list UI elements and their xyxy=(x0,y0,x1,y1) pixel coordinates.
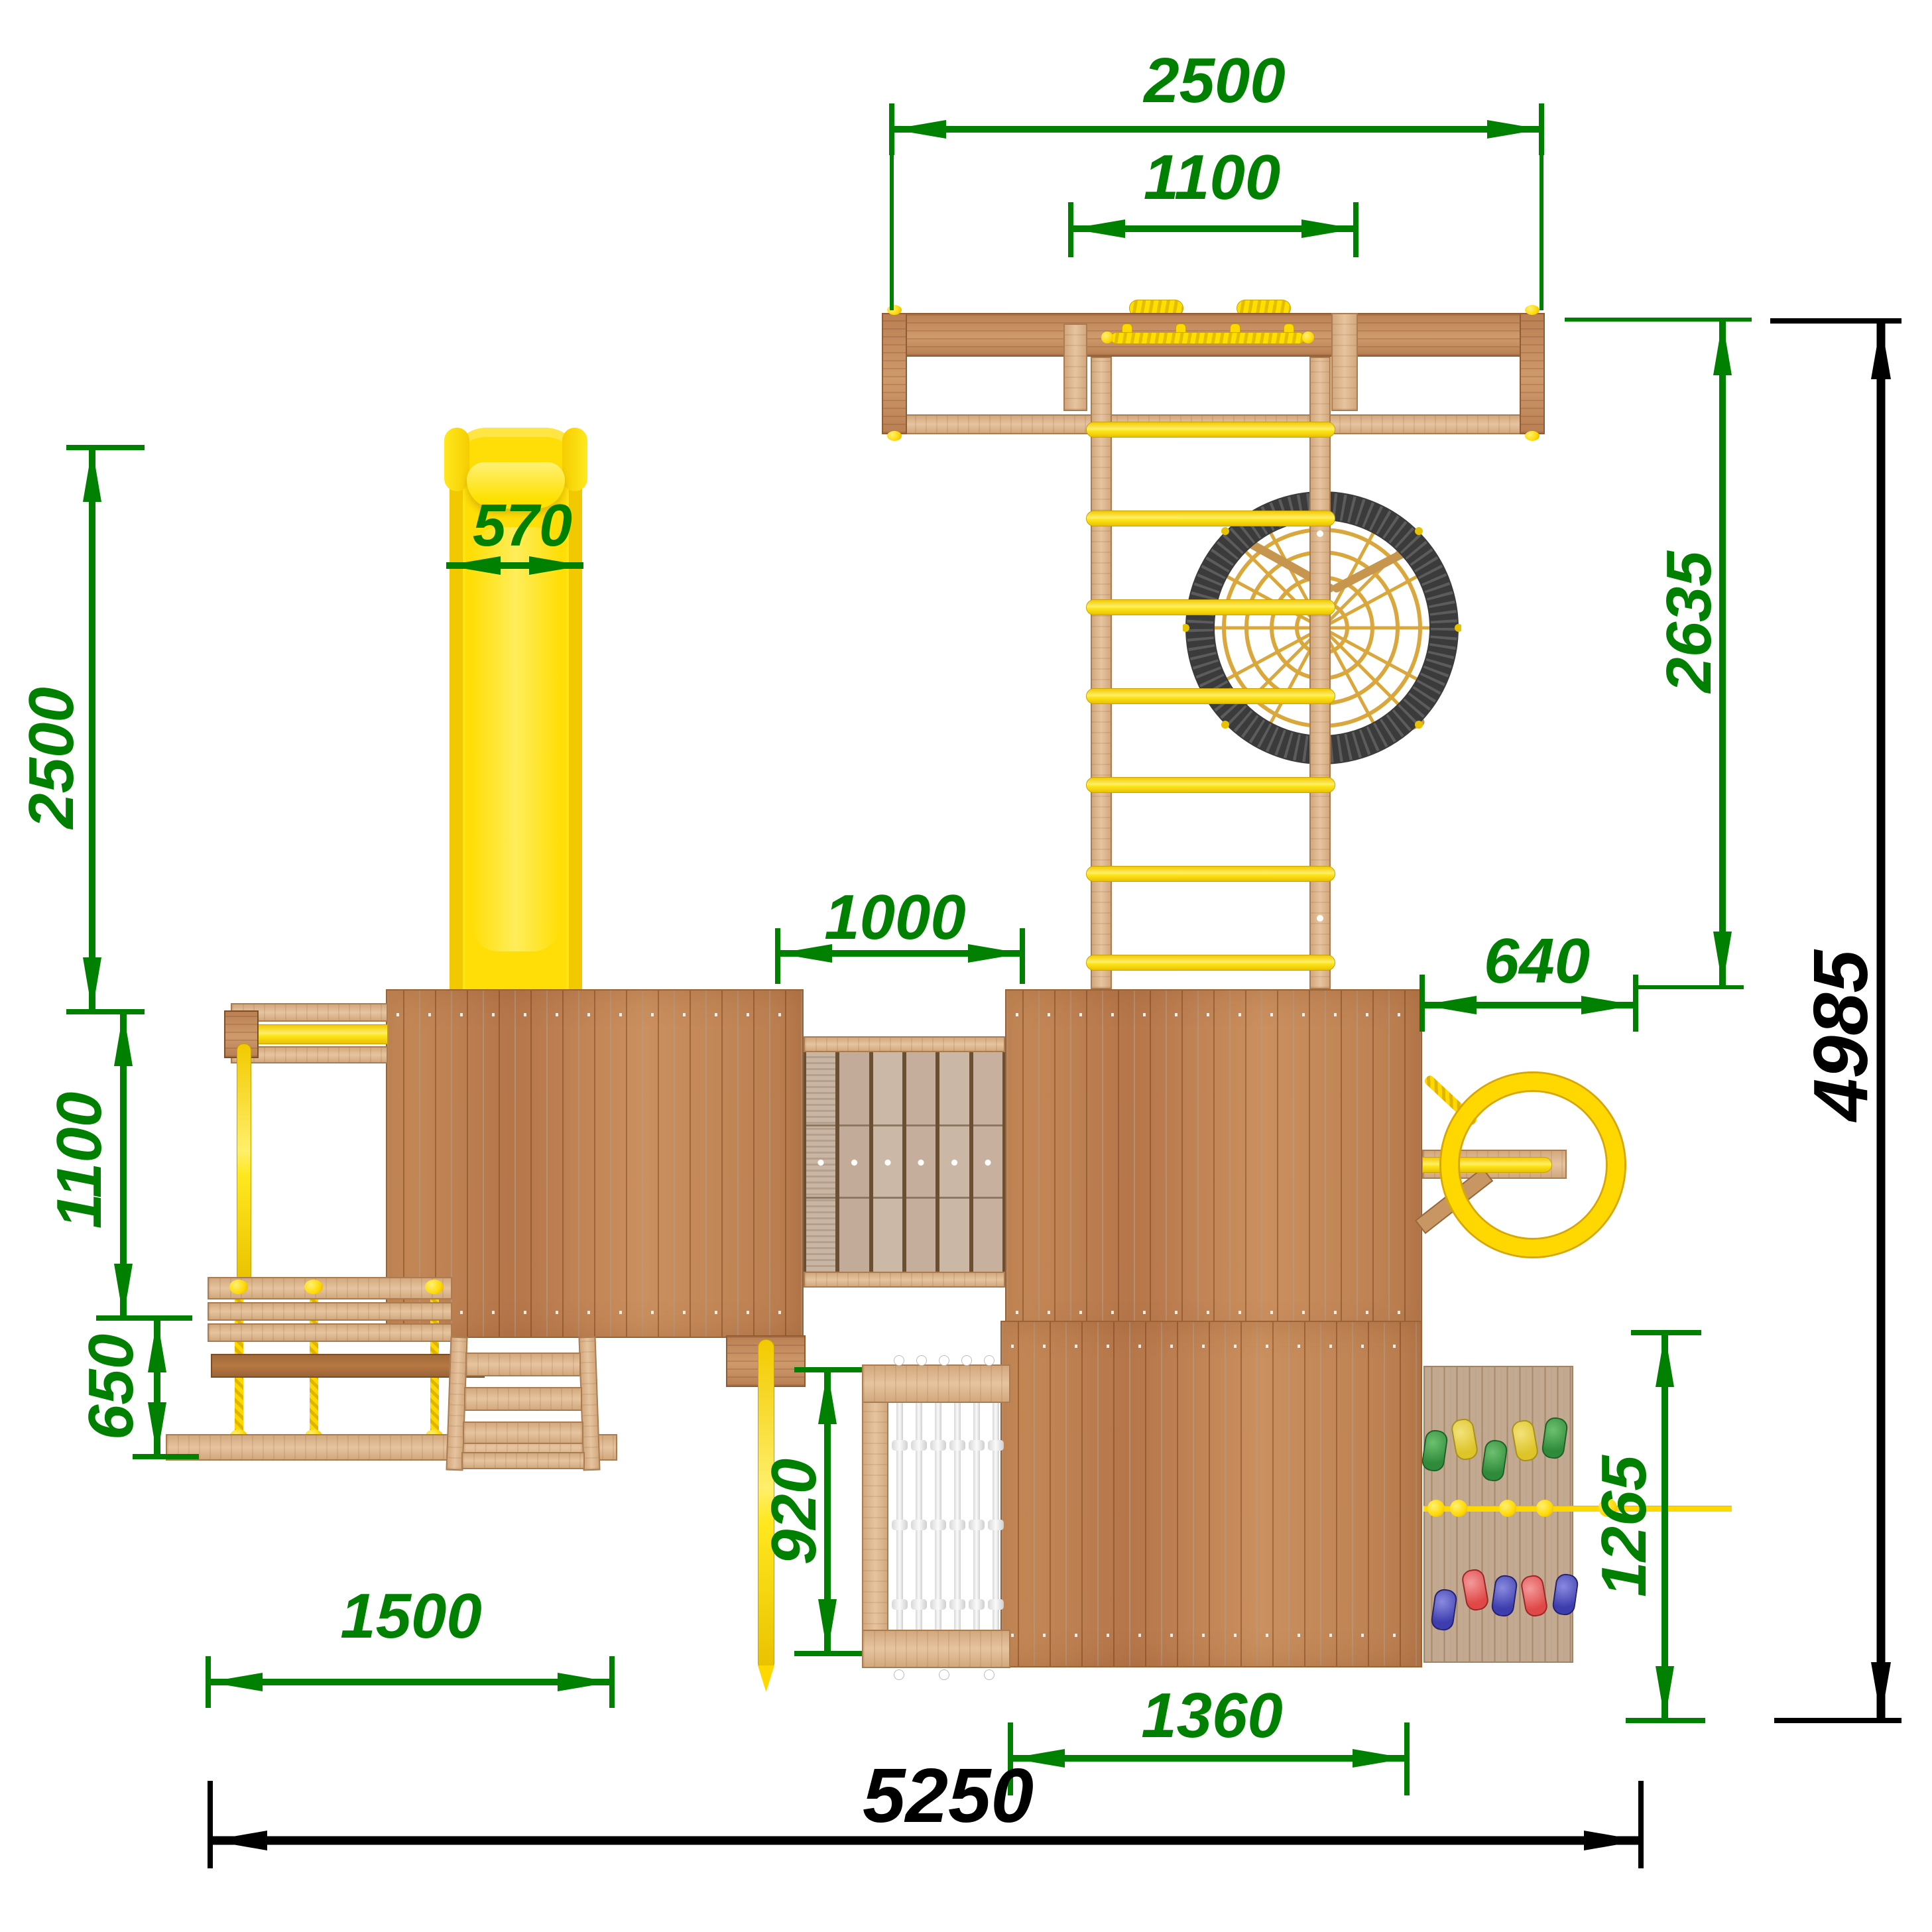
net-knot xyxy=(911,1599,927,1610)
right-tower-platform xyxy=(1005,989,1422,1338)
net-knob xyxy=(916,1355,927,1366)
dim-label-side-offset: 640 xyxy=(1484,930,1590,993)
net-knot xyxy=(892,1520,908,1530)
dim-label-top-beam-inner: 1100 xyxy=(1144,146,1280,210)
grip-bar-end xyxy=(1101,332,1113,343)
net-knot xyxy=(892,1440,908,1451)
net-knob xyxy=(894,1355,904,1366)
dim-label-ladder-reach: 2635 xyxy=(1658,551,1721,693)
wall-rope-knot xyxy=(1427,1500,1445,1517)
beam-cap-dot xyxy=(1525,305,1540,315)
ladder-rung xyxy=(1086,599,1335,615)
rope-ladder-dark-slat xyxy=(211,1354,485,1378)
nail-row xyxy=(1011,1634,1412,1637)
net-knob xyxy=(961,1355,972,1366)
rope-knot xyxy=(425,1280,444,1294)
lower-tower-platform xyxy=(1000,1321,1422,1667)
slide-right-lobe xyxy=(562,428,587,491)
bridge-plank xyxy=(873,1052,902,1273)
nail-row xyxy=(1011,1345,1412,1348)
net-knot xyxy=(949,1440,965,1451)
nail-row xyxy=(396,1013,793,1016)
wall-rope-knot xyxy=(1536,1500,1553,1517)
dim-label-slide-width: 570 xyxy=(473,496,572,556)
rope-ladder-slat xyxy=(208,1323,452,1342)
bridge-plank xyxy=(839,1052,869,1273)
nail-row xyxy=(1016,1013,1412,1016)
dim-label-bridge-width: 1000 xyxy=(824,886,966,949)
ladder-mount-plate-left xyxy=(1063,324,1087,411)
top-beam-end-block xyxy=(1520,313,1545,434)
rail-screw xyxy=(1317,530,1323,537)
bridge-bottom-rail xyxy=(804,1272,1005,1288)
bridge-plank xyxy=(973,1052,1002,1273)
net-knot xyxy=(930,1440,946,1451)
dim-label-rope-ladder-drop: 650 xyxy=(80,1334,143,1440)
bridge-plank xyxy=(906,1052,936,1273)
bridge-plank xyxy=(806,1052,835,1273)
dim-label-net-drop: 920 xyxy=(762,1459,826,1565)
net-knot xyxy=(969,1599,985,1610)
ladder-rung xyxy=(1086,422,1335,438)
net-knot xyxy=(988,1520,1004,1530)
ladder-rung xyxy=(1086,688,1335,704)
net-knot xyxy=(892,1599,908,1610)
ladder-rung xyxy=(1086,955,1335,971)
ladder-rung xyxy=(1086,511,1335,526)
net-knob xyxy=(939,1355,949,1366)
net-knot xyxy=(969,1520,985,1530)
wall-rope-knot xyxy=(1450,1500,1467,1517)
net-knot xyxy=(949,1520,965,1530)
beam-cap-dot xyxy=(887,305,902,315)
net-knob xyxy=(984,1355,995,1366)
net-knob xyxy=(984,1669,995,1680)
net-knot xyxy=(930,1599,946,1610)
net-knot xyxy=(988,1440,1004,1451)
grip-bar-end xyxy=(1302,332,1314,343)
swing-yellow-bar xyxy=(236,1024,388,1044)
dim-label-top-beam-width: 2500 xyxy=(1144,49,1286,113)
wall-rope-knot xyxy=(1499,1500,1516,1517)
swing-hanger-pole xyxy=(237,1044,251,1282)
dim-label-stairs-span: 1500 xyxy=(340,1585,482,1648)
beam-cap-dot xyxy=(887,431,902,441)
stairs-step xyxy=(465,1353,581,1376)
rope-knot xyxy=(304,1280,323,1294)
dim-label-total-depth: 4985 xyxy=(1802,950,1879,1121)
bridge-top-rail xyxy=(804,1036,1005,1052)
net-left-rail xyxy=(862,1364,888,1668)
net-knot xyxy=(988,1599,1004,1610)
dim-label-swing-bay-depth: 1100 xyxy=(48,1092,111,1229)
net-knob xyxy=(894,1669,904,1680)
nail-row xyxy=(1016,1311,1412,1314)
net-knot xyxy=(949,1599,965,1610)
dim-label-slide-length: 2500 xyxy=(20,687,84,829)
playground-top-view-drawing: 2500 1100 570 2500 1100 650 1000 640 263… xyxy=(0,0,1932,1932)
stairs-step xyxy=(464,1387,582,1411)
dim-label-total-width: 5250 xyxy=(863,1757,1034,1834)
slide-chute-sheen xyxy=(472,527,560,951)
grip-bar xyxy=(1111,332,1305,344)
net-top-rail xyxy=(862,1364,1010,1403)
net-bottom-rail xyxy=(862,1630,1010,1668)
rope-knot xyxy=(229,1280,248,1294)
ladder-rail-right xyxy=(1309,357,1331,989)
rail-screw xyxy=(1317,915,1323,922)
ladder-mount-plate-right xyxy=(1331,313,1358,411)
ladder-rung xyxy=(1086,866,1335,882)
bridge-deck xyxy=(804,1052,1005,1273)
stairs-step xyxy=(461,1452,585,1469)
wall-safety-rope xyxy=(1423,1506,1732,1512)
rope-ladder-slat xyxy=(208,1302,452,1321)
net-knot xyxy=(969,1440,985,1451)
net-knot xyxy=(930,1520,946,1530)
net-knot xyxy=(911,1520,927,1530)
net-knob xyxy=(939,1669,949,1680)
ladder-rung xyxy=(1086,777,1335,793)
slide-left-lobe xyxy=(444,428,469,491)
stairs-step xyxy=(463,1421,583,1444)
nail-row xyxy=(396,1311,793,1314)
bridge-plank xyxy=(939,1052,969,1273)
net-knot xyxy=(911,1440,927,1451)
dim-label-lower-tower-width: 1360 xyxy=(1141,1684,1283,1748)
beam-cap-dot xyxy=(1525,431,1540,441)
top-beam-end-block xyxy=(882,313,907,434)
dim-label-climb-wall-drop: 1265 xyxy=(1593,1455,1656,1597)
fire-pole-tip xyxy=(758,1665,774,1692)
yellow-ring xyxy=(1441,1073,1624,1256)
ladder-rail-left xyxy=(1091,357,1112,989)
